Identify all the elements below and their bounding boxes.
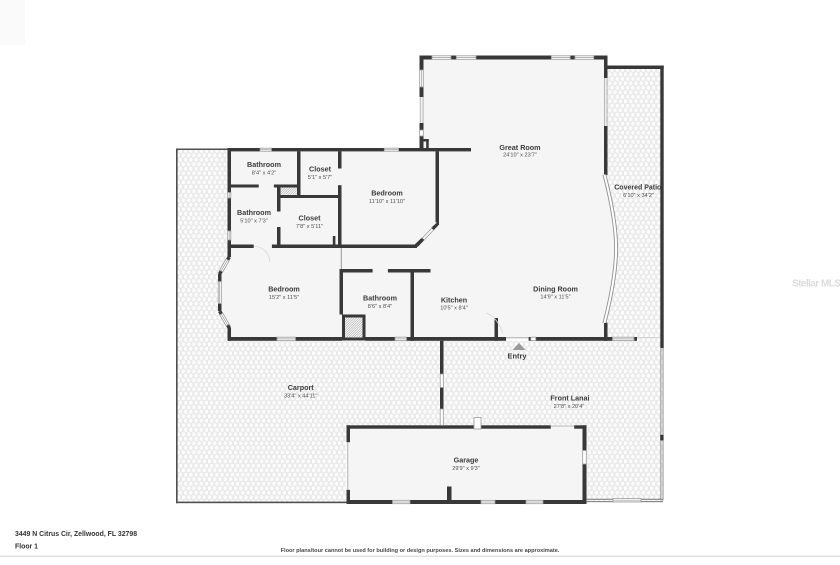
svg-text:Entry: Entry bbox=[508, 352, 528, 361]
svg-text:Bedroom: Bedroom bbox=[268, 285, 300, 294]
svg-text:Dining Room: Dining Room bbox=[533, 284, 578, 293]
svg-text:24'10" x 23'7": 24'10" x 23'7" bbox=[503, 153, 537, 159]
svg-text:8'4" x 4'2": 8'4" x 4'2" bbox=[252, 170, 276, 176]
svg-text:7'8" x 5'11": 7'8" x 5'11" bbox=[296, 224, 323, 230]
svg-text:Garage: Garage bbox=[454, 456, 479, 465]
svg-text:Closet: Closet bbox=[299, 214, 322, 223]
svg-text:Kitchen: Kitchen bbox=[441, 295, 467, 304]
svg-text:33'4" x 44'11": 33'4" x 44'11" bbox=[284, 394, 317, 400]
svg-text:Bathroom: Bathroom bbox=[247, 160, 281, 169]
svg-text:10'5" x 8'4": 10'5" x 8'4" bbox=[440, 306, 468, 312]
svg-text:Bedroom: Bedroom bbox=[371, 189, 403, 198]
svg-text:Bathroom: Bathroom bbox=[363, 294, 397, 303]
svg-text:3449 N Citrus Cir, Zellwood, F: 3449 N Citrus Cir, Zellwood, FL 32798 bbox=[15, 531, 137, 538]
svg-text:Covered Patio: Covered Patio bbox=[614, 185, 661, 192]
svg-text:Floor 1: Floor 1 bbox=[15, 544, 38, 551]
svg-text:11'10" x 11'10": 11'10" x 11'10" bbox=[369, 199, 405, 205]
svg-text:29'9" x 9'3": 29'9" x 9'3" bbox=[452, 466, 480, 472]
svg-text:5'10" x 7'3": 5'10" x 7'3" bbox=[240, 218, 268, 224]
svg-text:Bathroom: Bathroom bbox=[237, 208, 271, 217]
svg-text:Great Room: Great Room bbox=[499, 143, 540, 152]
svg-text:5'1" x 5'7": 5'1" x 5'7" bbox=[308, 175, 332, 181]
svg-text:Stellar MLS: Stellar MLS bbox=[792, 279, 840, 290]
svg-text:6'10" x 34'2": 6'10" x 34'2" bbox=[623, 193, 654, 199]
svg-text:15'2" x 11'5": 15'2" x 11'5" bbox=[269, 295, 299, 301]
svg-text:14'9" x 11'5": 14'9" x 11'5" bbox=[540, 295, 570, 301]
svg-text:27'8" x 20'4": 27'8" x 20'4" bbox=[554, 404, 585, 410]
svg-text:Floor plans/tour cannot be use: Floor plans/tour cannot be used for buil… bbox=[281, 548, 560, 554]
svg-text:Front Lanai: Front Lanai bbox=[550, 394, 589, 403]
svg-text:Closet: Closet bbox=[309, 165, 332, 174]
svg-text:Carport: Carport bbox=[288, 383, 315, 392]
svg-text:8'6" x 8'4": 8'6" x 8'4" bbox=[368, 304, 392, 310]
